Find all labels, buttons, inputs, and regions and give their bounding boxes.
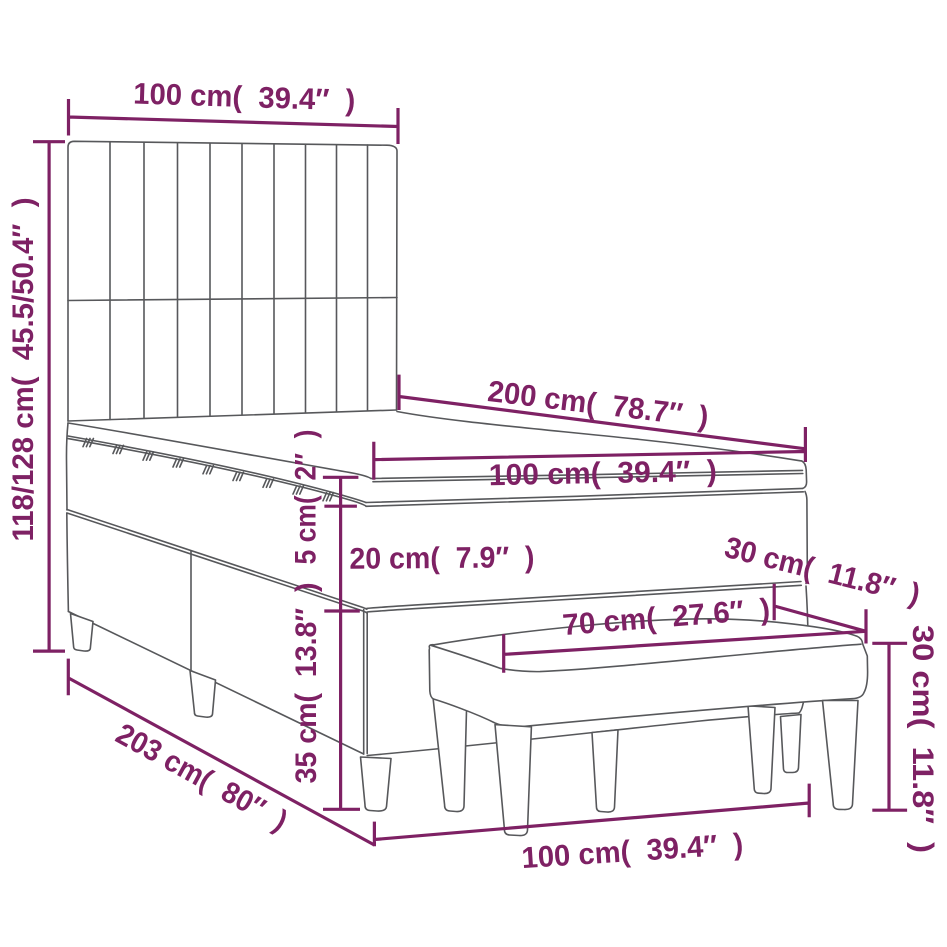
svg-text:20 cm( 7.9″ ): 20 cm( 7.9″ ) [349, 541, 534, 576]
svg-text:118/128 cm( 45.5/50.4″ ): 118/128 cm( 45.5/50.4″ ) [7, 198, 40, 542]
svg-text:30 cm( 11.8″ ): 30 cm( 11.8″ ) [906, 625, 939, 853]
svg-text:100 cm( 39.4″ ): 100 cm( 39.4″ ) [489, 455, 718, 492]
svg-text:5 cm( 2″ ): 5 cm( 2″ ) [290, 430, 323, 565]
svg-text:100 cm( 39.4″ ): 100 cm( 39.4″ ) [133, 78, 356, 118]
svg-text:35 cm( 13.8″ ): 35 cm( 13.8″ ) [290, 583, 323, 784]
